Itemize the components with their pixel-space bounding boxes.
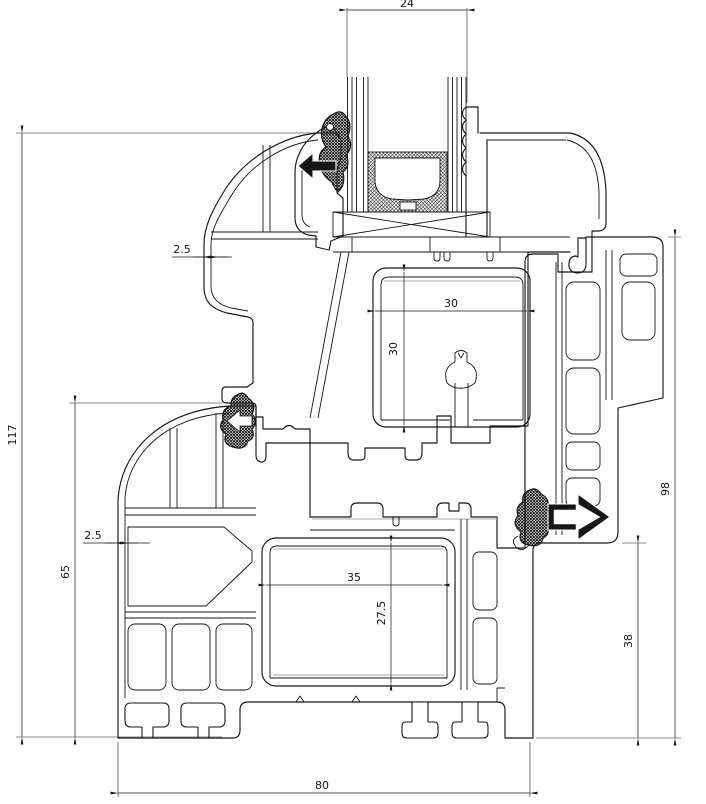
dim-frame-height-right: 98: [536, 237, 681, 738]
dim-label-117: 117: [6, 425, 19, 446]
dim-label-80: 80: [315, 779, 329, 792]
frame-chamber-b: [172, 624, 210, 690]
dim-frame-steel-width: 35: [266, 571, 442, 585]
frame-outer-contour: [118, 237, 663, 738]
frame-upstand-chamber-b: [566, 368, 600, 434]
frame-foot-b: [452, 702, 488, 738]
frame-floor-ticks: [296, 688, 505, 702]
frame-steel-reinforcement: [270, 546, 447, 678]
sash-bottom-euro-groove: [266, 252, 570, 460]
gasket-right-seal: [515, 489, 550, 546]
dim-label-30w: 30: [444, 297, 458, 310]
glass-spacer-foot: [400, 202, 416, 210]
dim-label-65: 65: [59, 565, 72, 579]
frame-chamber-c: [216, 624, 252, 690]
frame-mid-chamber-a: [473, 552, 497, 610]
sash-outer-wall: [204, 133, 318, 462]
dim-frame-wall: 2.5: [83, 529, 150, 543]
dim-sash-wall: 2.5: [172, 243, 232, 257]
dim-label-24: 24: [400, 0, 414, 10]
dim-label-38: 38: [622, 634, 635, 648]
frame-upstand-chamber-d: [622, 282, 655, 340]
frame-upstand-chamber-c: [620, 254, 657, 276]
frame-steel-chamber: [262, 538, 455, 686]
sash-right-arc: [570, 133, 606, 237]
frame-t-slot-a: [125, 703, 169, 738]
frame-inner-arc: [125, 413, 230, 698]
dim-frame-rebate-height: 38: [622, 543, 646, 738]
frame-chamber-a: [128, 624, 166, 690]
glass-spacer-bar: [375, 158, 440, 200]
dim-label-35: 35: [347, 571, 361, 584]
dim-label-sash-wall: 2.5: [173, 243, 191, 256]
sash-glazing-shelf: [333, 237, 570, 252]
dim-label-98: 98: [659, 482, 672, 496]
sash-overlap-lip: [569, 238, 586, 273]
frame-pentagon-chamber: [128, 527, 252, 606]
dim-frame-steel-height: 27.5: [375, 543, 391, 683]
dim-label-27-5: 27.5: [375, 601, 388, 626]
gasket-top-void: [327, 124, 334, 131]
sash-right-arc-inner: [567, 140, 599, 219]
sash-internal-dividers: [211, 145, 349, 418]
dim-label-30h: 30: [387, 342, 400, 356]
technical-drawing-page: 24 2.5 30 30 117 65: [0, 0, 706, 804]
sash-shelf-notches: [434, 252, 493, 261]
frame-upstand-dividers: [556, 250, 612, 535]
frame-profile: [118, 237, 663, 738]
dim-total-height: 117: [6, 133, 318, 737]
dim-frame-height-left: 65: [59, 403, 222, 737]
gasket-glazing-top: [319, 112, 350, 192]
frame-t-slot-b: [181, 703, 225, 738]
dim-sash-steel-width: 30: [375, 297, 527, 311]
profile-drawing: 24 2.5 30 30 117 65: [0, 0, 706, 804]
frame-steel-shadow: [273, 549, 444, 675]
frame-foot-a: [402, 702, 438, 738]
frame-mid-chamber-b: [473, 618, 497, 684]
frame-upstand-chamber-a: [566, 282, 600, 360]
dim-frame-depth: 80: [118, 742, 530, 797]
dim-glazing-width: 24: [347, 0, 467, 103]
dim-label-frame-wall: 2.5: [84, 529, 102, 542]
dim-sash-steel-height: 30: [387, 272, 404, 425]
frame-screw-boss-a: [566, 442, 600, 470]
frame-mid-column: [461, 519, 467, 690]
